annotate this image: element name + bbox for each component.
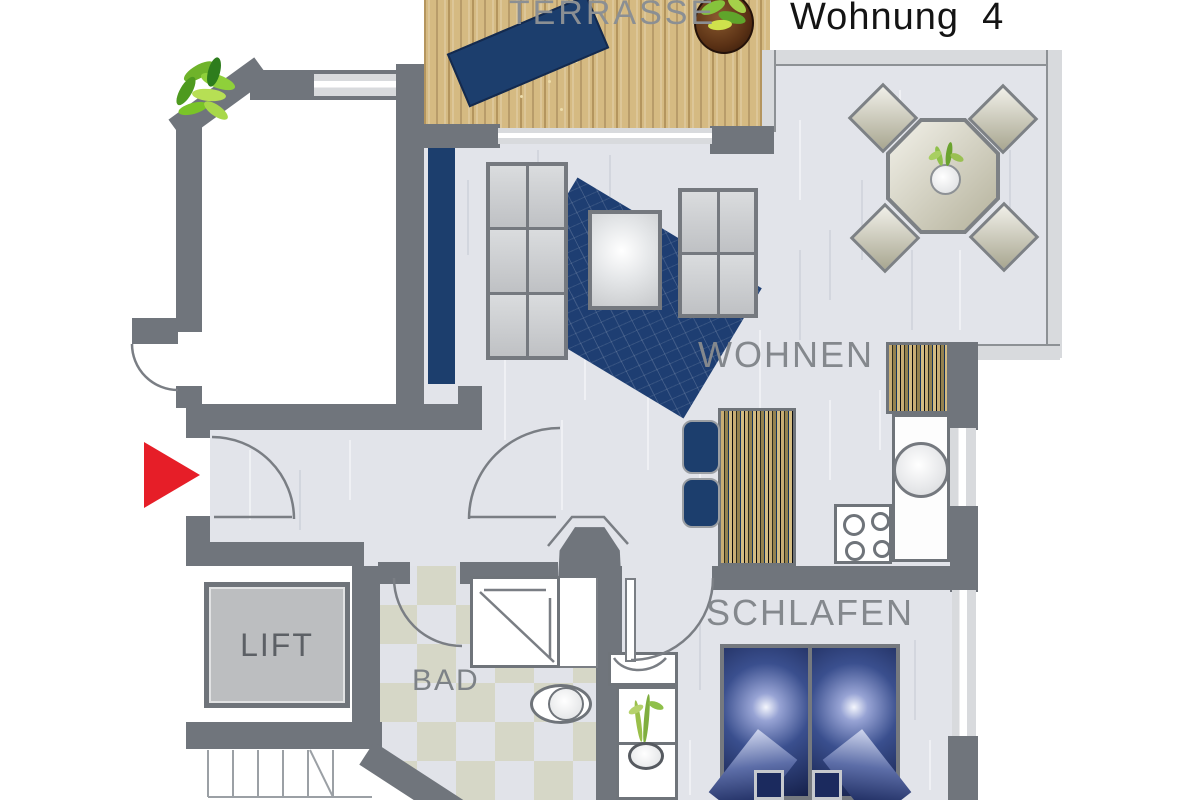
neighbor-door-arc — [132, 344, 178, 390]
entrance-door-arc — [212, 437, 294, 519]
entrance-arrow — [144, 442, 200, 508]
funnel-chevron — [548, 517, 628, 546]
sleeping-label: SCHLAFEN — [706, 592, 914, 634]
living-door-arc — [469, 428, 560, 519]
corner-plant-leaf — [201, 98, 230, 123]
bedroom-door-arc — [631, 578, 713, 660]
stair-diagonal — [310, 750, 333, 797]
corner-plant — [152, 55, 262, 145]
bath-door-arc — [394, 578, 462, 646]
page-title: Wohnung 4 — [790, 0, 1004, 39]
bath-label: BAD — [412, 664, 480, 698]
living-label: WOHNEN — [698, 334, 874, 376]
floor-plan: LIFT — [0, 0, 1200, 800]
terrace-label: TERRASSE — [490, 0, 735, 33]
shower-diagonal — [480, 592, 554, 662]
